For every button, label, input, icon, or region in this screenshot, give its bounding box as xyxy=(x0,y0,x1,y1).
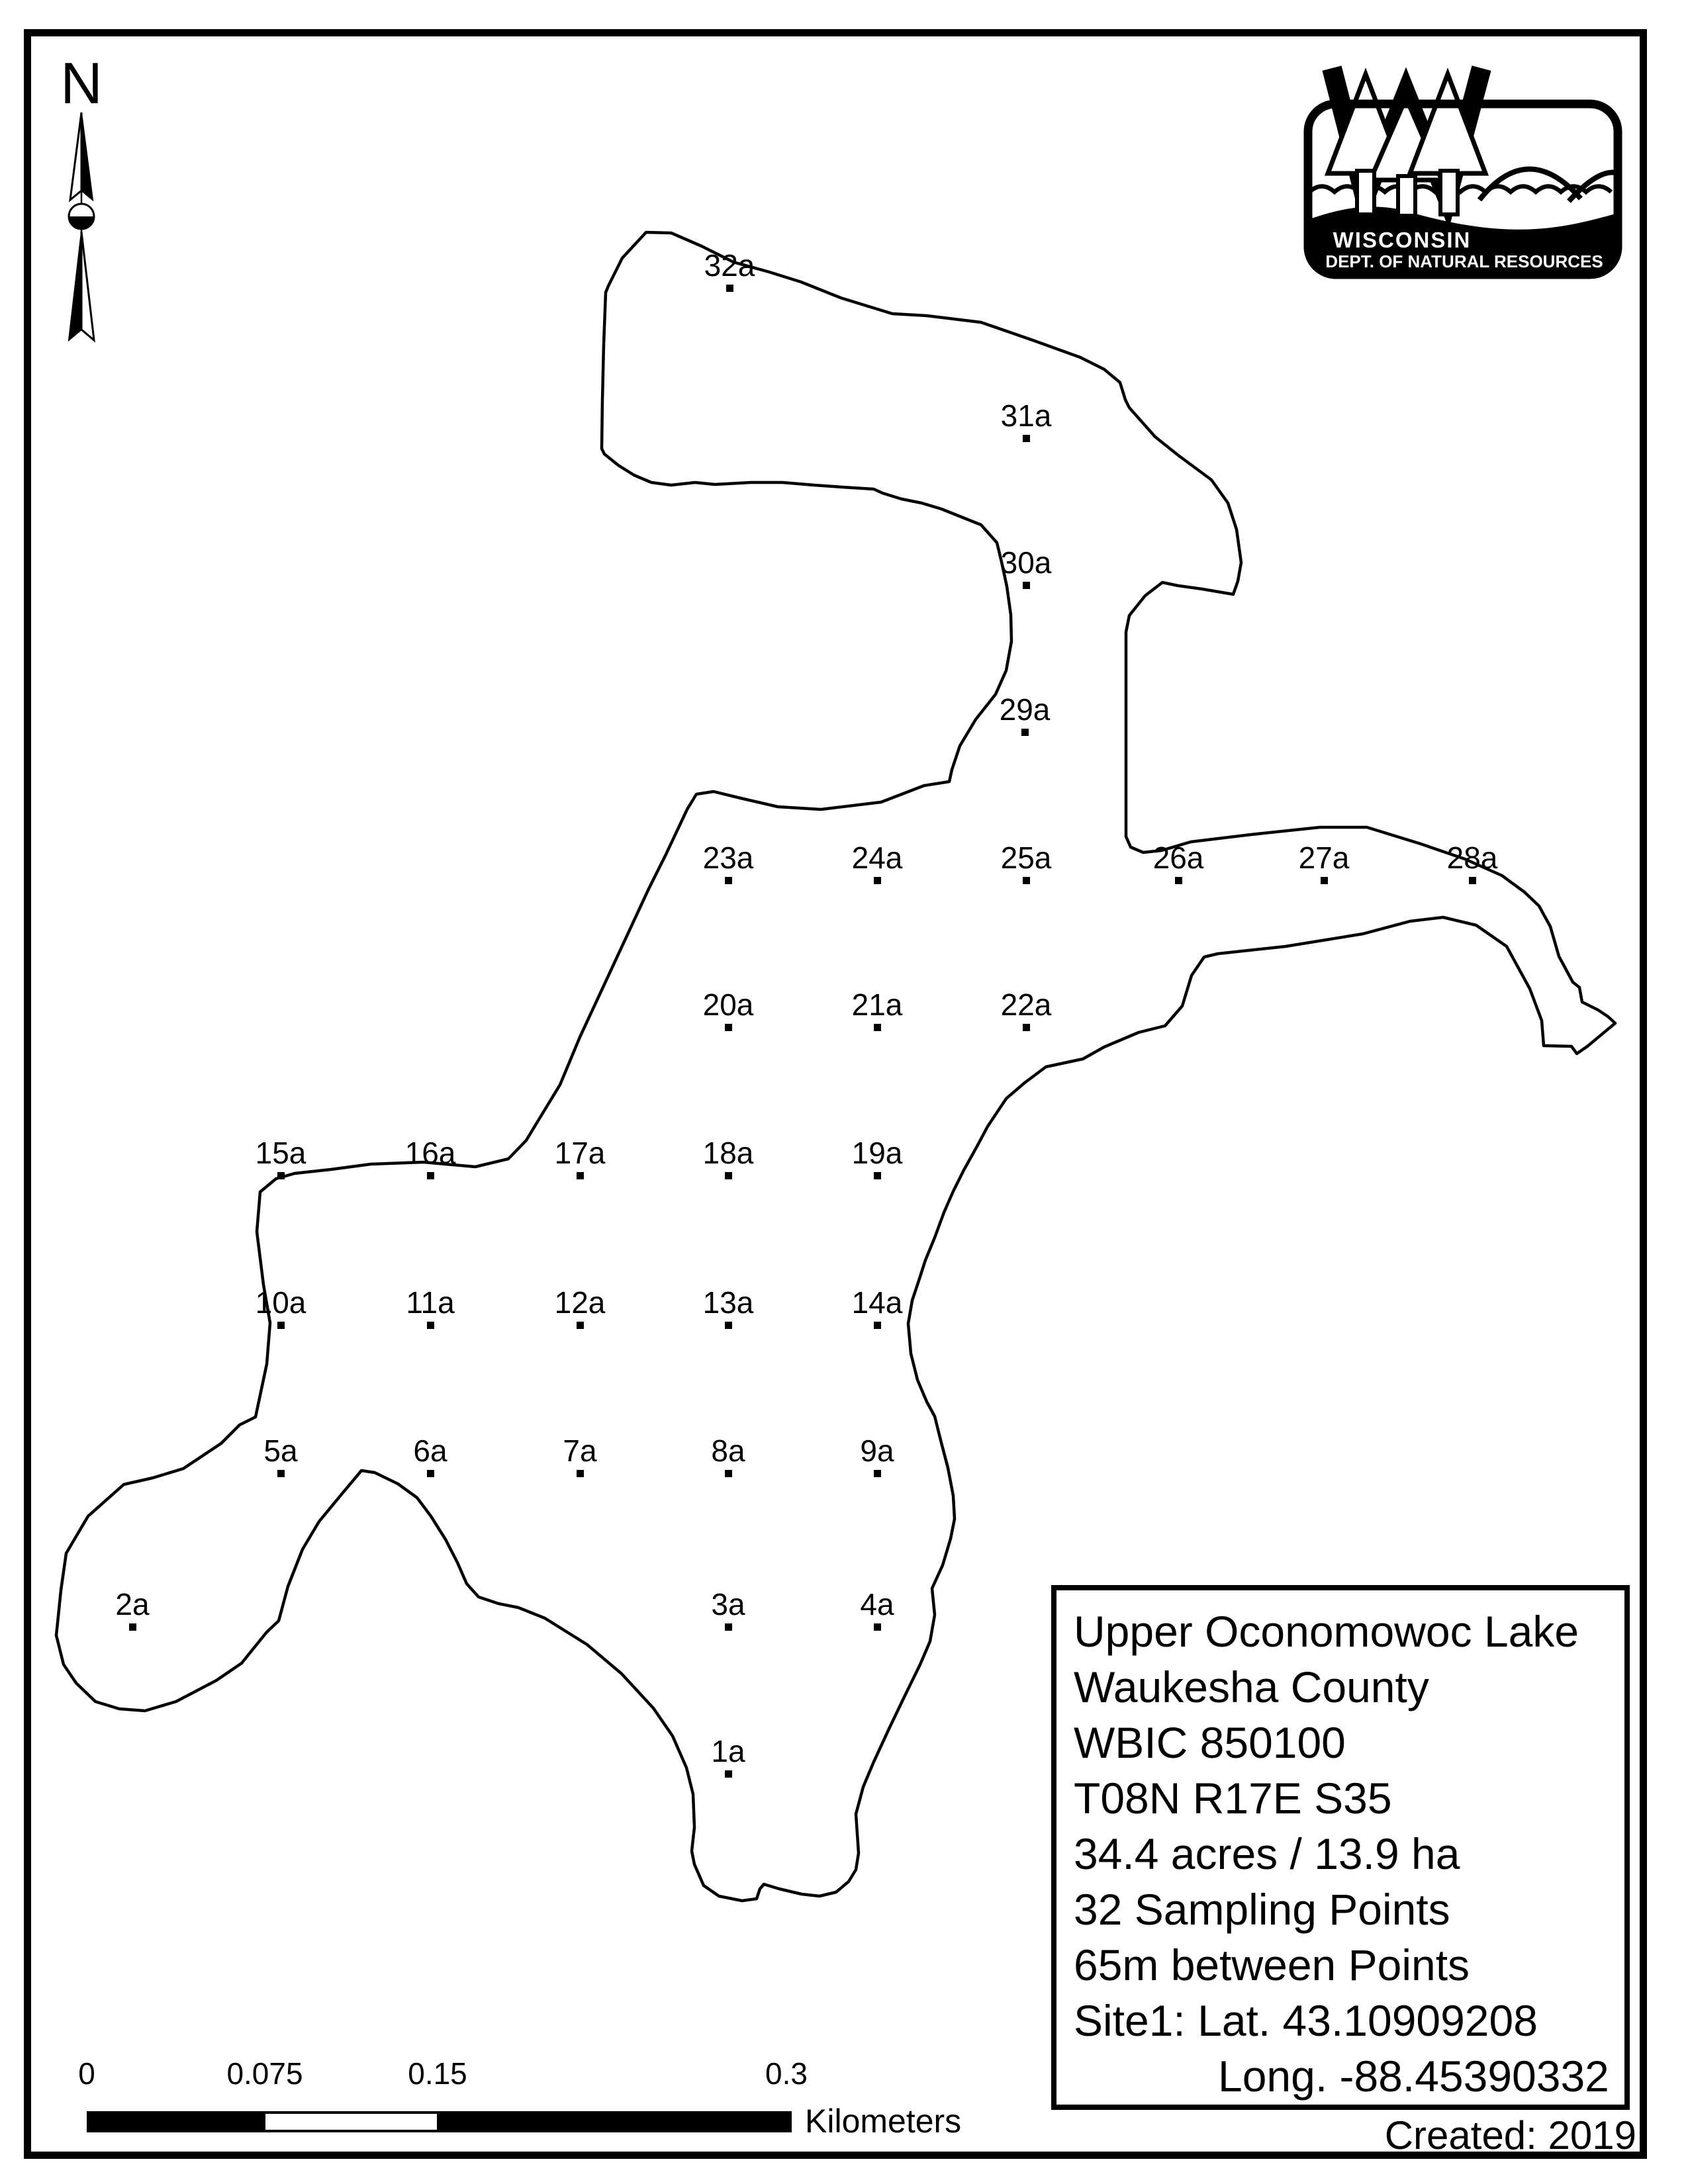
sampling-point-label: 7a xyxy=(563,1433,596,1468)
scalebar-unit-label: Kilometers xyxy=(805,2103,961,2139)
sampling-point-dot xyxy=(725,1470,732,1477)
lake-info-box: Upper Oconomowoc Lake Waukesha County WB… xyxy=(1051,1585,1630,2110)
sampling-point-label: 11a xyxy=(406,1285,454,1320)
sampling-point-label: 32a xyxy=(704,248,755,283)
scalebar-segment-black-2 xyxy=(437,2114,789,2130)
info-lake-name: Upper Oconomowoc Lake xyxy=(1074,1604,1624,1659)
sampling-point-label: 25a xyxy=(1001,841,1052,875)
sampling-point-dot xyxy=(1023,435,1030,442)
sampling-point-label: 1a xyxy=(711,1734,745,1768)
sampling-point-label: 16a xyxy=(405,1136,456,1170)
sampling-point-dot xyxy=(725,1770,732,1778)
scalebar xyxy=(87,2111,792,2132)
sampling-point-dot xyxy=(1175,877,1182,884)
sampling-point-dot xyxy=(874,1172,881,1179)
sampling-point-dot xyxy=(874,1623,881,1631)
sampling-point-dot xyxy=(577,1470,584,1477)
north-needle-lower-right xyxy=(81,232,94,340)
sampling-point-dot xyxy=(1021,729,1029,736)
sampling-point-dot xyxy=(726,285,733,292)
logo-text-wisconsin: WISCONSIN xyxy=(1333,228,1472,252)
sampling-point-dot xyxy=(725,877,732,884)
created-date: Created: 2019 xyxy=(1059,2115,1636,2156)
sampling-point-label: 2a xyxy=(115,1587,149,1621)
scalebar-tick-0075: 0.075 xyxy=(226,2057,303,2090)
sampling-point-dot xyxy=(1469,877,1476,884)
scalebar-segment-black-1 xyxy=(89,2114,265,2130)
info-sampling-points: 32 Sampling Points xyxy=(1074,1882,1624,1937)
sampling-point-label: 14a xyxy=(852,1285,903,1320)
north-needle-circle-bottom xyxy=(69,216,94,229)
sampling-point-dot xyxy=(725,1172,732,1179)
logo-trunk-left xyxy=(1357,171,1374,214)
sampling-point-dot xyxy=(725,1623,732,1631)
logo-trunk-middle xyxy=(1398,176,1415,216)
info-township: T08N R17E S35 xyxy=(1074,1770,1624,1826)
info-point-spacing: 65m between Points xyxy=(1074,1937,1624,1993)
sampling-point-label: 22a xyxy=(1001,987,1052,1022)
sampling-point-dot xyxy=(427,1172,434,1179)
info-site-lat: Site1: Lat. 43.10909208 xyxy=(1074,1993,1624,2048)
sampling-point-label: 4a xyxy=(860,1587,894,1621)
sampling-point-dot xyxy=(129,1623,136,1631)
north-needle-upper-right xyxy=(81,113,93,200)
sampling-point-label: 24a xyxy=(852,841,903,875)
scalebar-tick-0: 0 xyxy=(78,2057,95,2090)
sampling-point-dot xyxy=(577,1322,584,1329)
logo-text-dept: DEPT. OF NATURAL RESOURCES xyxy=(1325,251,1603,271)
sampling-point-dot xyxy=(277,1172,285,1179)
sampling-point-dot xyxy=(1023,582,1030,589)
info-wbic: WBIC 850100 xyxy=(1074,1715,1624,1770)
sampling-point-label: 9a xyxy=(860,1433,894,1468)
sampling-point-label: 13a xyxy=(703,1285,754,1320)
sampling-point-dot xyxy=(427,1470,434,1477)
sampling-point-dot xyxy=(874,877,881,884)
sampling-point-label: 31a xyxy=(1001,398,1052,433)
sampling-point-dot xyxy=(1023,1024,1030,1031)
scalebar-tick-03: 0.3 xyxy=(765,2057,808,2090)
sampling-point-label: 23a xyxy=(703,841,754,875)
sampling-point-dot xyxy=(427,1322,434,1329)
sampling-point-label: 12a xyxy=(555,1285,606,1320)
sampling-point-dot xyxy=(277,1470,285,1477)
sampling-point-label: 30a xyxy=(1001,545,1052,580)
sampling-point-dot xyxy=(725,1024,732,1031)
sampling-point-label: 21a xyxy=(852,987,903,1022)
sampling-point-label: 20a xyxy=(703,987,754,1022)
sampling-point-label: 8a xyxy=(711,1433,745,1468)
sampling-point-label: 3a xyxy=(711,1587,745,1621)
sampling-point-dot xyxy=(1321,877,1328,884)
sampling-point-dot xyxy=(874,1024,881,1031)
sampling-point-dot xyxy=(577,1172,584,1179)
sampling-point-label: 6a xyxy=(413,1433,447,1468)
north-arrow: N xyxy=(44,52,123,376)
sampling-point-dot xyxy=(725,1322,732,1329)
sampling-point-label: 17a xyxy=(555,1136,606,1170)
sampling-point-label: 28a xyxy=(1447,841,1498,875)
sampling-point-label: 27a xyxy=(1299,841,1350,875)
info-county: Waukesha County xyxy=(1074,1659,1624,1715)
info-area: 34.4 acres / 13.9 ha xyxy=(1074,1826,1624,1882)
sampling-point-label: 19a xyxy=(852,1136,903,1170)
sampling-point-label: 15a xyxy=(256,1136,306,1170)
sampling-point-label: 18a xyxy=(703,1136,754,1170)
sampling-point-dot xyxy=(1023,877,1030,884)
sampling-point-label: 26a xyxy=(1153,841,1204,875)
north-label: N xyxy=(60,52,103,116)
scalebar-tick-015: 0.15 xyxy=(408,2057,467,2090)
dnr-logo: WISCONSIN DEPT. OF NATURAL RESOURCES xyxy=(1288,54,1630,287)
scalebar-segment-white xyxy=(265,2114,437,2130)
info-site-long: Long. -88.45390332 xyxy=(1074,2048,1624,2104)
logo-trunk-right xyxy=(1440,171,1458,214)
sampling-point-dot xyxy=(874,1470,881,1477)
sampling-point-label: 29a xyxy=(1000,692,1051,727)
sampling-point-dot xyxy=(277,1322,285,1329)
sampling-point-label: 5a xyxy=(263,1433,297,1468)
sampling-point-label: 10a xyxy=(256,1285,306,1320)
sampling-point-dot xyxy=(874,1322,881,1329)
north-needle-upper-left xyxy=(70,113,81,200)
north-needle-lower-left xyxy=(69,232,81,340)
